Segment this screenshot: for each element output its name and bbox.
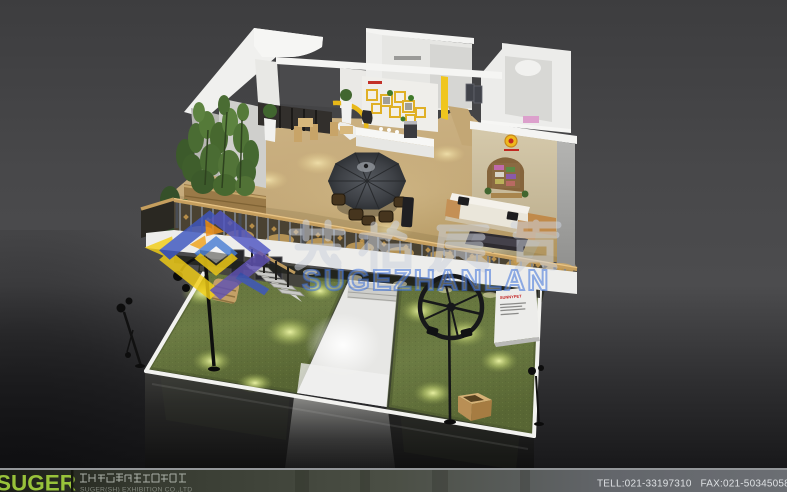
svg-text:SUGER: SUGER: [0, 471, 76, 492]
svg-text:SUGER(SH) EXHIBITION CO.,LTD: SUGER(SH) EXHIBITION CO.,LTD: [80, 487, 192, 492]
svg-text:TELL:021-33197310 FAX:021-50: TELL:021-33197310 FAX:021-50345058: [597, 479, 787, 490]
svg-text:SUGEZHANLAN: SUGEZHANLAN: [302, 265, 551, 297]
